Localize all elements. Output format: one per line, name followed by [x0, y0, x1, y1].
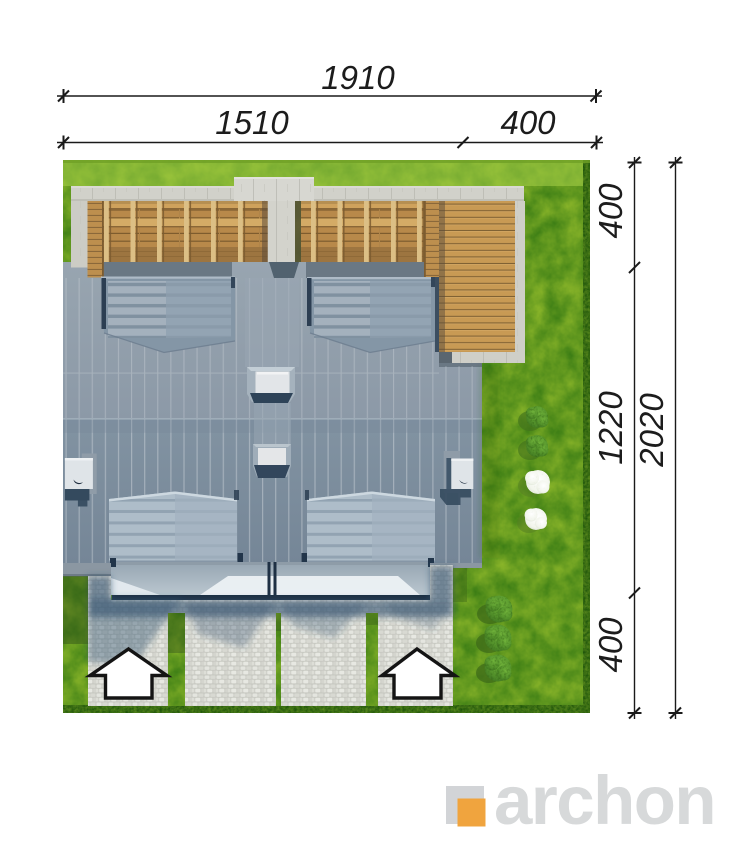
svg-text:400: 400	[592, 617, 629, 673]
svg-text:400: 400	[592, 183, 629, 239]
svg-text:1910: 1910	[321, 59, 395, 96]
svg-text:2020: 2020	[633, 393, 670, 468]
svg-text:archon: archon	[494, 762, 715, 839]
svg-text:400: 400	[500, 104, 556, 141]
svg-text:1220: 1220	[592, 391, 629, 465]
svg-text:1510: 1510	[215, 104, 289, 141]
